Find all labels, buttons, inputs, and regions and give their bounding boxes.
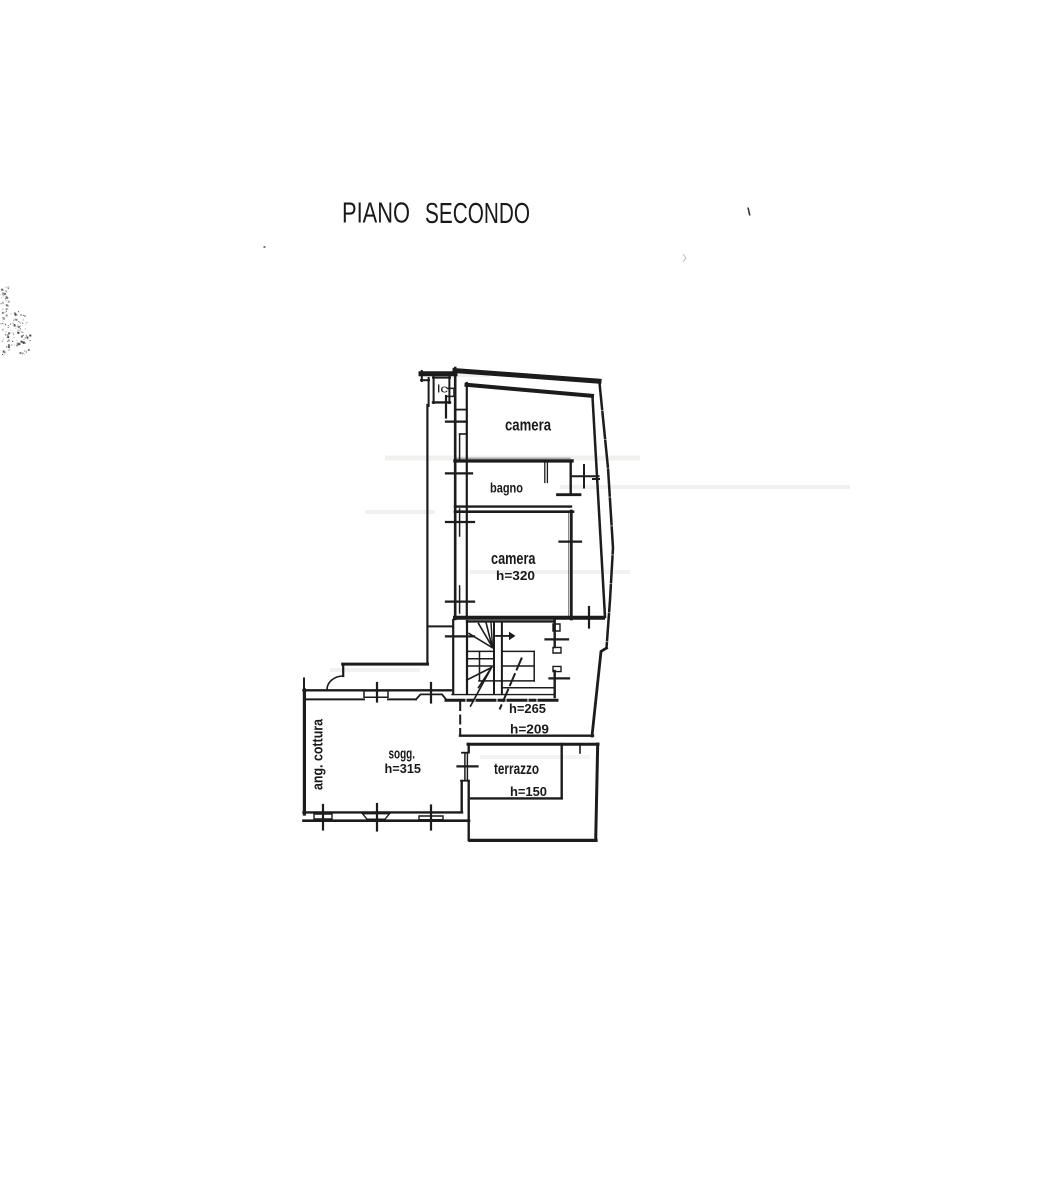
svg-text:SECONDO: SECONDO xyxy=(425,198,530,230)
svg-text:h=209: h=209 xyxy=(510,721,549,736)
svg-text:h=320: h=320 xyxy=(496,568,535,583)
svg-text:h=315: h=315 xyxy=(385,761,422,776)
svg-text:camera: camera xyxy=(491,549,536,568)
svg-text:h=150: h=150 xyxy=(510,784,547,799)
svg-text:h=265: h=265 xyxy=(509,701,546,716)
svg-text:lc: lc xyxy=(437,384,449,396)
svg-text:terrazzo: terrazzo xyxy=(494,761,539,778)
svg-text:camera: camera xyxy=(505,416,551,435)
svg-text:sogg.: sogg. xyxy=(389,745,416,762)
svg-text:bagno: bagno xyxy=(490,480,523,496)
svg-text:ang. cottura: ang. cottura xyxy=(310,718,327,790)
svg-text:PIANO: PIANO xyxy=(342,198,410,230)
